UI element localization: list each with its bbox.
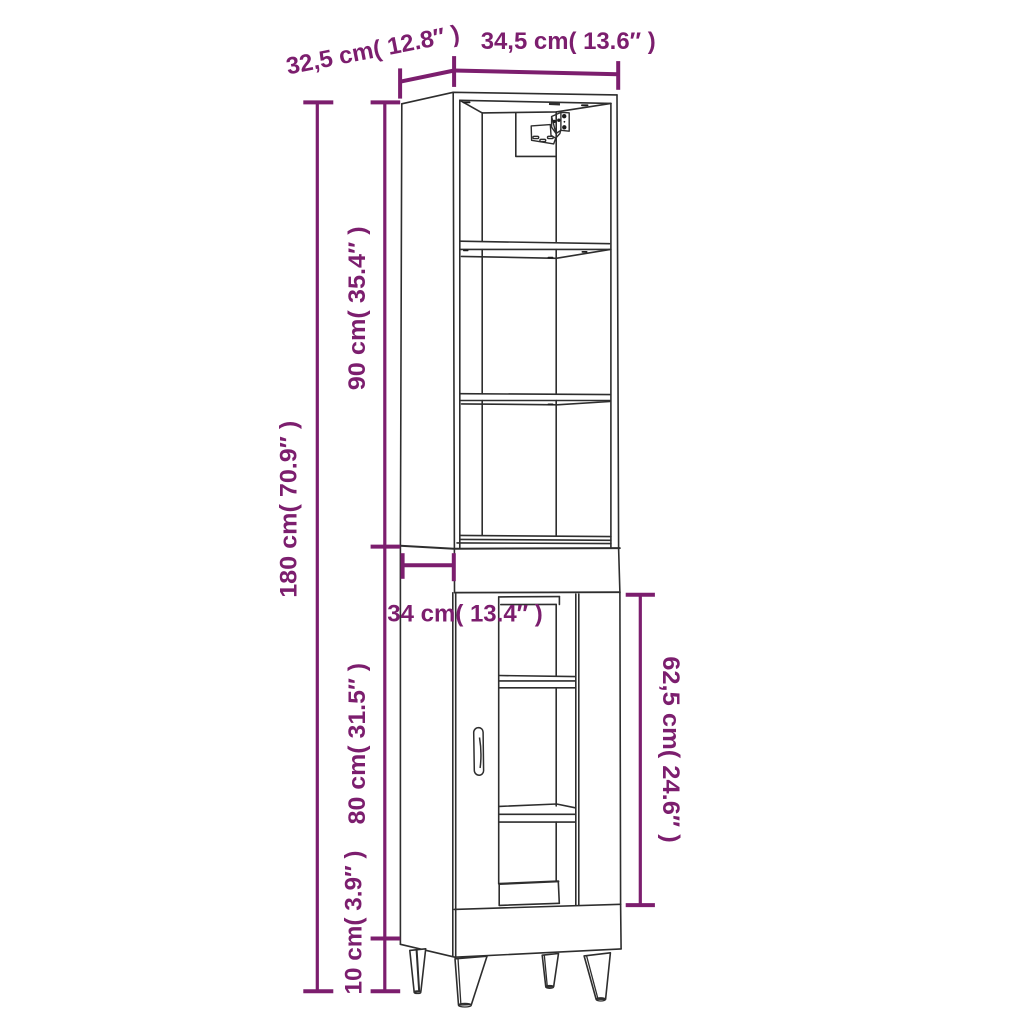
- svg-text:10 cm( 3.9″ ): 10 cm( 3.9″ ): [341, 851, 368, 995]
- svg-text:180 cm( 70.9″ ): 180 cm( 70.9″ ): [275, 421, 302, 598]
- svg-text:34 cm( 13.4″ ): 34 cm( 13.4″ ): [387, 600, 543, 627]
- svg-text:62,5 cm( 24.6″ ): 62,5 cm( 24.6″ ): [657, 656, 684, 843]
- svg-text:34,5 cm( 13.6″ ): 34,5 cm( 13.6″ ): [481, 28, 656, 55]
- svg-text:80 cm( 31.5″ ): 80 cm( 31.5″ ): [344, 663, 371, 825]
- svg-text:90 cm( 35.4″ ): 90 cm( 35.4″ ): [344, 226, 371, 390]
